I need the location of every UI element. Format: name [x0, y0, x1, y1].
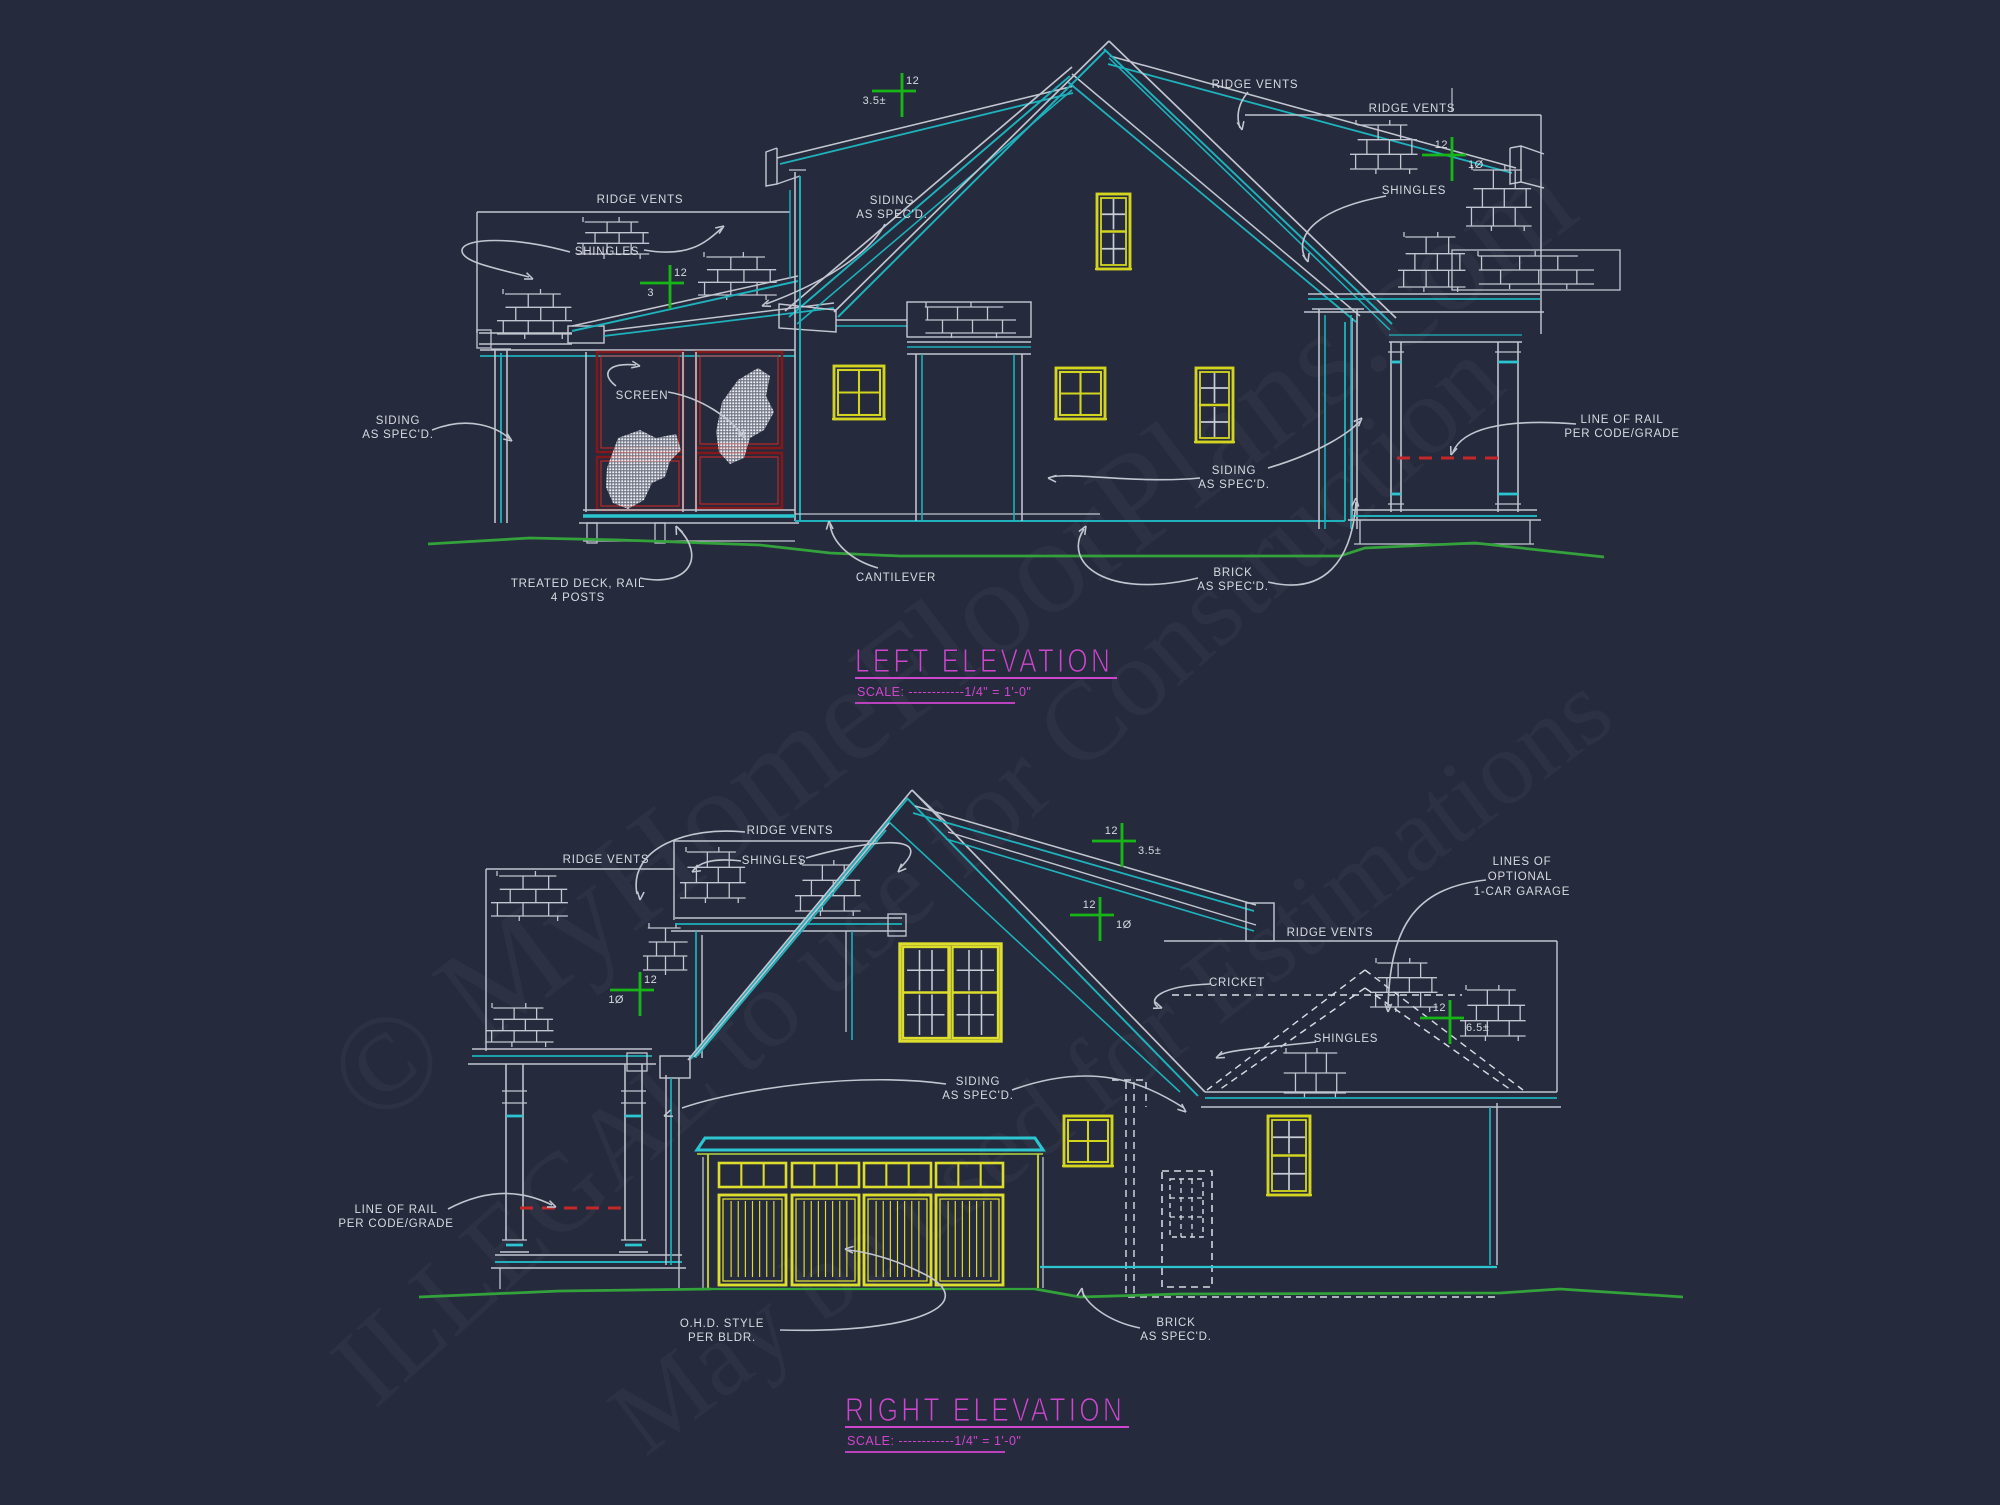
svg-text:1Ø: 1Ø	[1468, 159, 1484, 171]
svg-text:LINE OF RAIL: LINE OF RAIL	[1580, 414, 1663, 426]
svg-text:SIDING: SIDING	[956, 1076, 1000, 1088]
svg-text:O.H.D. STYLE: O.H.D. STYLE	[680, 1318, 764, 1330]
svg-text:PER CODE/GRADE: PER CODE/GRADE	[338, 1218, 453, 1230]
svg-text:LINES OF: LINES OF	[1493, 856, 1552, 868]
svg-text:LINE OF RAIL: LINE OF RAIL	[354, 1204, 437, 1216]
svg-text:RIDGE VENTS: RIDGE VENTS	[597, 194, 684, 206]
svg-text:SIDING: SIDING	[1212, 465, 1256, 477]
svg-text:RIDGE VENTS: RIDGE VENTS	[1212, 79, 1299, 91]
svg-text:RIDGE VENTS: RIDGE VENTS	[563, 854, 650, 866]
svg-text:SCALE: ------------1/4" = 1'-: SCALE: ------------1/4" = 1'-0"	[857, 685, 1031, 699]
svg-text:SHINGLES: SHINGLES	[575, 246, 640, 258]
svg-text:RIDGE VENTS: RIDGE VENTS	[1369, 103, 1456, 115]
svg-text:3.5±: 3.5±	[863, 95, 886, 107]
svg-text:RIDGE VENTS: RIDGE VENTS	[1287, 927, 1374, 939]
svg-text:12: 12	[644, 974, 657, 986]
svg-text:4 POSTS: 4 POSTS	[551, 592, 605, 604]
svg-text:RIDGE VENTS: RIDGE VENTS	[747, 825, 834, 837]
svg-text:BRICK: BRICK	[1213, 567, 1252, 579]
svg-text:CRICKET: CRICKET	[1209, 977, 1265, 989]
svg-text:SCREEN: SCREEN	[616, 390, 669, 402]
svg-text:SHINGLES: SHINGLES	[1382, 185, 1447, 197]
svg-text:SCALE: ------------1/4" = 1'-: SCALE: ------------1/4" = 1'-0"	[847, 1434, 1021, 1448]
svg-text:12: 12	[1083, 899, 1096, 911]
svg-text:TREATED DECK, RAIL: TREATED DECK, RAIL	[511, 578, 645, 590]
svg-text:12: 12	[906, 75, 919, 87]
svg-text:AS SPEC'D.: AS SPEC'D.	[362, 429, 434, 441]
svg-text:AS SPEC'D.: AS SPEC'D.	[1198, 479, 1270, 491]
svg-text:SHINGLES: SHINGLES	[1314, 1033, 1379, 1045]
svg-text:1Ø: 1Ø	[1116, 919, 1132, 931]
svg-text:3: 3	[647, 287, 654, 299]
svg-text:12: 12	[1435, 139, 1448, 151]
svg-text:AS SPEC'D.: AS SPEC'D.	[856, 209, 928, 221]
svg-text:OPTIONAL: OPTIONAL	[1488, 871, 1553, 883]
svg-text:3.5±: 3.5±	[1138, 845, 1161, 857]
svg-text:PER BLDR.: PER BLDR.	[688, 1332, 756, 1344]
svg-text:1-CAR GARAGE: 1-CAR GARAGE	[1474, 886, 1571, 898]
svg-text:BRICK: BRICK	[1156, 1317, 1195, 1329]
svg-text:CANTILEVER: CANTILEVER	[856, 572, 936, 584]
svg-text:AS SPEC'D.: AS SPEC'D.	[942, 1090, 1014, 1102]
svg-text:SHINGLES: SHINGLES	[742, 855, 807, 867]
svg-text:12: 12	[1433, 1002, 1446, 1014]
svg-text:6.5±: 6.5±	[1466, 1022, 1489, 1034]
svg-text:SIDING: SIDING	[376, 415, 420, 427]
svg-text:1Ø: 1Ø	[608, 994, 624, 1006]
svg-text:AS SPEC'D.: AS SPEC'D.	[1197, 581, 1269, 593]
svg-text:LEFT ELEVATION: LEFT ELEVATION	[855, 642, 1113, 679]
svg-text:SIDING: SIDING	[870, 195, 914, 207]
svg-text:12: 12	[674, 267, 687, 279]
svg-text:AS SPEC'D.: AS SPEC'D.	[1140, 1331, 1212, 1343]
svg-text:PER CODE/GRADE: PER CODE/GRADE	[1564, 428, 1679, 440]
svg-text:12: 12	[1105, 825, 1118, 837]
svg-text:RIGHT ELEVATION: RIGHT ELEVATION	[845, 1391, 1125, 1428]
